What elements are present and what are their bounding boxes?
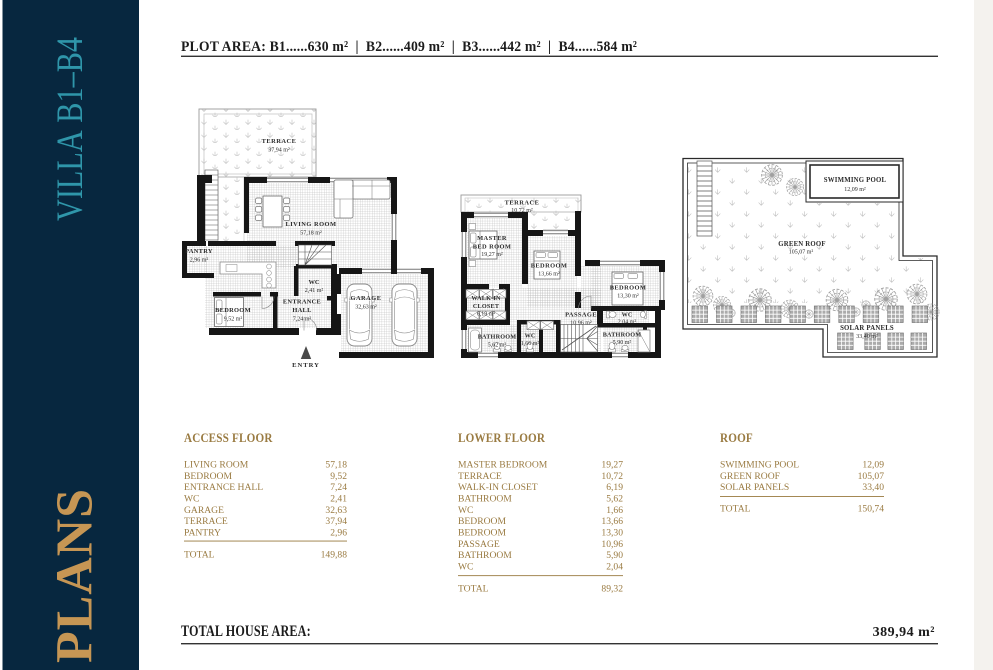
svg-text:WC: WC	[458, 505, 473, 516]
svg-text:GARAGE: GARAGE	[350, 295, 381, 302]
svg-text:ENTRANCE HALL: ENTRANCE HALL	[184, 482, 263, 493]
svg-text:13,66: 13,66	[601, 516, 623, 527]
svg-text:SOLAR PANELS: SOLAR PANELS	[840, 325, 894, 332]
svg-text:33,40 m²: 33,40 m²	[856, 334, 878, 340]
svg-text:5,90 m²: 5,90 m²	[613, 340, 632, 346]
svg-text:105,07 m²: 105,07 m²	[789, 250, 814, 256]
svg-text:LIVING ROOM: LIVING ROOM	[184, 460, 249, 471]
svg-text:89,32: 89,32	[601, 584, 623, 595]
svg-text:TERRACE: TERRACE	[505, 200, 540, 207]
svg-text:GREEN ROOF: GREEN ROOF	[720, 471, 780, 482]
svg-text:BATHROOM: BATHROOM	[458, 550, 512, 561]
svg-text:6,19 m²: 6,19 m²	[477, 312, 496, 318]
svg-text:PASSAGE: PASSAGE	[458, 539, 500, 550]
svg-text:BED ROOM: BED ROOM	[473, 244, 512, 251]
svg-text:BATHROOM: BATHROOM	[603, 332, 642, 339]
svg-text:BEDROOM: BEDROOM	[531, 263, 568, 270]
svg-text:WALK-IN: WALK-IN	[471, 295, 501, 302]
svg-text:TOTAL: TOTAL	[184, 550, 215, 561]
svg-text:2,04 m²: 2,04 m²	[618, 320, 637, 326]
svg-text:150,74: 150,74	[858, 504, 885, 515]
svg-text:PASSAGE: PASSAGE	[565, 312, 597, 319]
svg-text:1,66 m²: 1,66 m²	[521, 341, 540, 347]
svg-text:BEDROOM: BEDROOM	[458, 528, 506, 539]
svg-text:MASTER BEDROOM: MASTER BEDROOM	[458, 460, 548, 471]
svg-text:LOWER FLOOR: LOWER FLOOR	[458, 430, 545, 445]
svg-text:MASTER: MASTER	[477, 235, 507, 242]
svg-text:37,94: 37,94	[325, 516, 347, 527]
svg-text:13,66 m²: 13,66 m²	[538, 272, 560, 278]
svg-text:33,40: 33,40	[862, 482, 884, 493]
svg-text:57,18 m²: 57,18 m²	[300, 231, 322, 237]
svg-text:TOTAL: TOTAL	[458, 584, 489, 595]
svg-text:LIVING ROOM: LIVING ROOM	[285, 221, 336, 228]
svg-text:SWIMMING POOL: SWIMMING POOL	[824, 177, 887, 184]
svg-text:TOTAL: TOTAL	[720, 504, 751, 515]
svg-text:2,41 m²: 2,41 m²	[305, 288, 324, 294]
svg-text:WC: WC	[458, 562, 473, 573]
svg-text:2,96 m²: 2,96 m²	[190, 258, 209, 264]
svg-text:37,94 m²: 37,94 m²	[268, 148, 290, 154]
svg-text:5,62 m²: 5,62 m²	[488, 343, 507, 349]
svg-text:WC: WC	[622, 312, 633, 319]
svg-text:19,27: 19,27	[601, 460, 623, 471]
svg-text:TERRACE: TERRACE	[262, 138, 297, 145]
svg-text:SWIMMING POOL: SWIMMING POOL	[720, 460, 799, 471]
svg-text:TOTAL HOUSE AREA:: TOTAL HOUSE AREA:	[181, 622, 311, 640]
svg-text:ROOF: ROOF	[720, 430, 753, 445]
svg-text:5,62: 5,62	[606, 494, 623, 505]
svg-text:2,41: 2,41	[330, 494, 347, 505]
svg-text:PANTRY: PANTRY	[185, 248, 213, 255]
svg-text:57,18: 57,18	[325, 460, 347, 471]
svg-text:ENTRANCE: ENTRANCE	[283, 299, 321, 306]
svg-text:12,09: 12,09	[862, 460, 884, 471]
svg-text:GARAGE: GARAGE	[184, 505, 224, 516]
svg-text:10,72: 10,72	[601, 471, 623, 482]
svg-text:GREEN ROOF: GREEN ROOF	[778, 241, 826, 248]
svg-text:BATHROOM: BATHROOM	[478, 334, 517, 341]
svg-text:BEDROOM: BEDROOM	[458, 516, 506, 527]
svg-text:BEDROOM: BEDROOM	[215, 307, 251, 314]
svg-text:PLOT AREA: B1......630 m² |: PLOT AREA: B1......630 m² | B2......409 …	[181, 38, 637, 55]
svg-text:149,88: 149,88	[321, 550, 348, 561]
svg-text:1,66: 1,66	[606, 505, 623, 516]
svg-text:32,63 m²: 32,63 m²	[355, 305, 377, 311]
svg-text:13,30 m²: 13,30 m²	[617, 294, 639, 300]
svg-text:ENTRY: ENTRY	[292, 362, 320, 369]
svg-text:WC: WC	[184, 494, 199, 505]
svg-text:7,24: 7,24	[330, 482, 347, 493]
svg-text:HALL: HALL	[292, 307, 311, 314]
svg-text:32,63: 32,63	[325, 505, 347, 516]
svg-text:9,52 m²: 9,52 m²	[224, 317, 243, 323]
svg-text:BEDROOM: BEDROOM	[610, 285, 647, 292]
svg-text:WC: WC	[308, 279, 319, 286]
svg-text:PLANS: PLANS	[47, 489, 104, 663]
svg-text:105,07: 105,07	[858, 471, 885, 482]
svg-text:5,90: 5,90	[606, 550, 623, 561]
svg-text:13,30: 13,30	[601, 528, 623, 539]
svg-text:WC: WC	[525, 333, 536, 340]
svg-text:CLOSET: CLOSET	[473, 303, 500, 310]
svg-text:SOLAR PANELS: SOLAR PANELS	[720, 482, 789, 493]
svg-text:19,27 m²: 19,27 m²	[481, 252, 503, 258]
svg-text:7,24 m²: 7,24 m²	[293, 317, 312, 323]
svg-text:TERRACE: TERRACE	[184, 516, 228, 527]
svg-text:WALK-IN CLOSET: WALK-IN CLOSET	[458, 482, 538, 493]
svg-text:10,96: 10,96	[601, 539, 623, 550]
svg-text:TERRACE: TERRACE	[458, 471, 502, 482]
svg-text:6,19: 6,19	[606, 482, 623, 493]
svg-text:VILLA B1–B4: VILLA B1–B4	[50, 37, 91, 221]
svg-text:PANTRY: PANTRY	[184, 528, 221, 539]
svg-text:BATHROOM: BATHROOM	[458, 494, 512, 505]
svg-text:9,52: 9,52	[330, 471, 347, 482]
svg-text:12,09 m²: 12,09 m²	[844, 187, 866, 193]
svg-text:2,96: 2,96	[330, 528, 347, 539]
svg-text:2,04: 2,04	[606, 562, 623, 573]
svg-text:ACCESS FLOOR: ACCESS FLOOR	[184, 430, 273, 445]
svg-text:BEDROOM: BEDROOM	[184, 471, 232, 482]
svg-text:389,94 m²: 389,94 m²	[873, 625, 935, 640]
